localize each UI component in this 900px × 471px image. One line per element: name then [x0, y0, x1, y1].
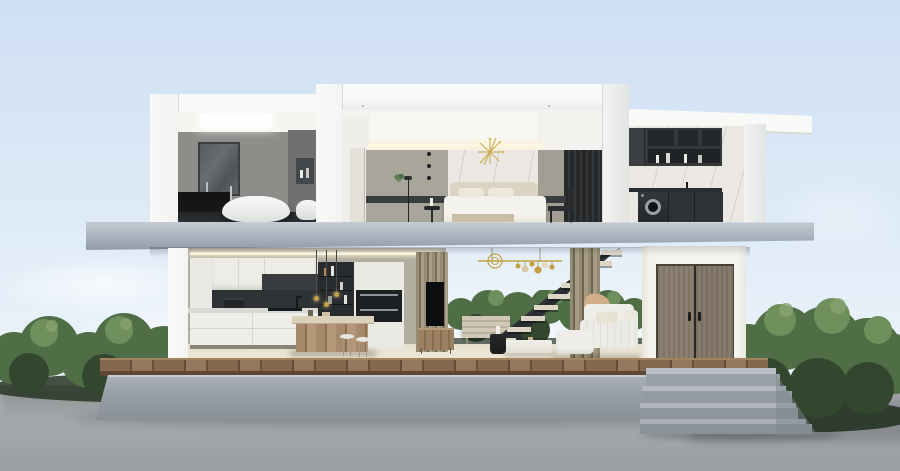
- oven-handle: [360, 309, 398, 311]
- bottle: [331, 266, 334, 276]
- sofa-chaise: [556, 330, 594, 354]
- bedroom-frame-right: [602, 84, 629, 240]
- pendant-bulb: [314, 296, 319, 301]
- island-item: [322, 312, 330, 316]
- bathroom-shell: [150, 94, 330, 230]
- pendant-bulb: [334, 292, 339, 297]
- tv: [426, 282, 444, 326]
- cooktop: [268, 308, 302, 311]
- lower-interior: [188, 248, 646, 362]
- bedroom-interior: [342, 110, 602, 230]
- tv-console: [418, 328, 454, 350]
- washer-dial: [641, 194, 644, 197]
- kitchen-tall-cabinet: [190, 258, 213, 308]
- open-shelf: [702, 130, 720, 146]
- open-shelf: [678, 130, 698, 146]
- bathroom-interior: [178, 112, 322, 222]
- entry-door-leaf-right: [696, 266, 733, 364]
- bottle: [344, 295, 347, 304]
- niche-bottle: [306, 168, 309, 178]
- concrete-steps: [640, 364, 818, 438]
- washer-door-ring: [645, 199, 661, 215]
- bedroom-backwall-left: [366, 150, 448, 228]
- table-item: [528, 337, 533, 340]
- bathroom-cut-wall: [150, 94, 179, 230]
- washing-machine: [638, 192, 668, 222]
- under-slab-shade: [188, 248, 646, 255]
- sideboard-leg: [466, 338, 468, 344]
- floor-lamp-head: [404, 176, 412, 180]
- laundry-corner-column: [744, 124, 766, 228]
- bed-pillow: [458, 188, 484, 197]
- table-item: [516, 336, 522, 340]
- cabinet-door: [628, 128, 645, 166]
- stool-leg: [343, 338, 344, 356]
- pendant-wire: [326, 250, 327, 302]
- side-table: [490, 334, 506, 354]
- door-handle: [698, 312, 701, 321]
- door-seam: [694, 266, 696, 364]
- laundry-interior: [626, 126, 744, 222]
- shelf-niche: [296, 158, 314, 184]
- bedroom-shell: [316, 84, 628, 240]
- gold-starburst-decor: [472, 134, 508, 170]
- cabinet-seam: [694, 192, 695, 222]
- drawer-line: [252, 313, 253, 347]
- wall-art: [198, 142, 240, 196]
- bathtub: [222, 196, 290, 222]
- floor-lamp: [408, 178, 409, 228]
- sofa-cushion: [595, 311, 618, 324]
- oven-handle: [360, 294, 398, 296]
- cove-light: [368, 144, 540, 147]
- laundry-base-cabinets: [668, 192, 723, 222]
- nightstand-vase: [430, 198, 433, 206]
- island-item: [308, 310, 313, 316]
- door-handle: [688, 312, 691, 321]
- stool-leg: [366, 341, 367, 357]
- shelf-jar: [666, 153, 670, 163]
- island-top: [292, 316, 374, 324]
- bed-pillow: [488, 188, 514, 197]
- bottle: [340, 282, 343, 290]
- plant-leaves: [394, 174, 404, 182]
- niche-bottle: [300, 170, 303, 178]
- coffee-table: [506, 340, 552, 353]
- side-table-vase: [496, 326, 500, 334]
- wall-sconce-dot: [427, 164, 431, 168]
- wall-sconce-dot: [427, 176, 431, 180]
- stool-leg: [359, 341, 360, 357]
- stool-leg: [350, 338, 351, 356]
- ceiling-tray: [368, 112, 540, 146]
- pendant-bulb: [324, 302, 329, 307]
- pendant-wire: [316, 250, 317, 296]
- soffit-downlight: [362, 105, 364, 107]
- chair-back: [568, 188, 574, 210]
- bed-throw: [452, 214, 514, 222]
- tub-faucet: [230, 186, 232, 200]
- entrance-wall: [642, 246, 746, 368]
- ceiling-light-panel: [200, 115, 272, 127]
- wall-sconce-dot: [427, 152, 431, 156]
- shelf-jar: [656, 155, 659, 163]
- wall-top-shade: [642, 246, 746, 256]
- shelf-jar: [684, 154, 687, 163]
- kitchen-upper-dark: [262, 274, 318, 290]
- bedroom-frame-left: [316, 84, 343, 240]
- pendant-wire: [336, 250, 337, 292]
- cabinet-seam: [238, 258, 239, 290]
- scene-cutaway-house: [0, 0, 900, 471]
- cloud: [770, 170, 900, 260]
- kitchen-faucet-spout: [296, 296, 302, 298]
- shelf-jar: [698, 155, 702, 163]
- open-shelf: [648, 130, 674, 146]
- door-opening: [350, 148, 365, 228]
- soffit-downlight: [548, 105, 550, 107]
- console-leg: [450, 348, 451, 354]
- console-leg: [421, 348, 422, 354]
